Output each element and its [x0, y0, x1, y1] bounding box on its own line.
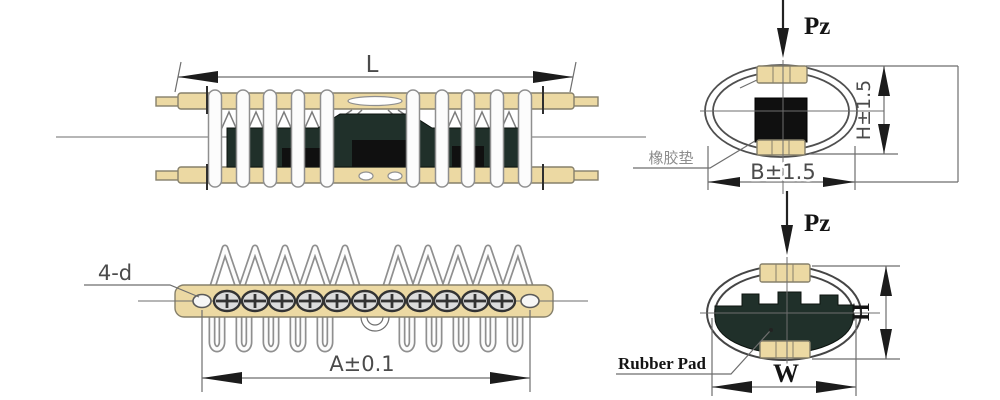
wire-tube	[491, 90, 504, 187]
dim-arrow-down	[878, 124, 890, 154]
side-view: L	[56, 52, 646, 190]
clamp-block	[757, 140, 805, 155]
mounting-hole-left	[193, 295, 211, 308]
clamp-block	[757, 66, 807, 83]
plan-view: 4-d A±0.1	[84, 248, 588, 392]
center-boss-arcs	[361, 317, 389, 331]
pz-label-bottom: Pz	[804, 210, 830, 237]
wire-tube	[321, 90, 334, 187]
dim-arrow-left	[178, 71, 218, 83]
wire-tube	[407, 90, 420, 187]
screw	[407, 291, 433, 311]
rubber-pad-callout-cn: 橡胶垫	[633, 141, 755, 168]
dim-arrow-left	[708, 177, 740, 187]
clamp-block	[760, 264, 810, 282]
dim-B15-label: B±1.5	[750, 160, 815, 184]
dim-arrow-left	[202, 372, 242, 384]
wire-clamp-top	[757, 66, 807, 83]
wire-tube	[209, 90, 222, 187]
wire-tube	[292, 90, 305, 187]
center-mass-shadow	[352, 140, 407, 167]
isolator-technical-drawing: L 4-d	[0, 0, 1000, 400]
rubber-pad-label: Rubber Pad	[618, 354, 707, 373]
wire-tube	[237, 90, 250, 187]
dim-H-label: H	[849, 303, 874, 321]
dim-arrow-right	[533, 71, 573, 83]
screw	[324, 291, 350, 311]
top-bar-slot	[348, 97, 402, 106]
hole-callout-label: 4-d	[98, 261, 132, 285]
screw	[269, 291, 295, 311]
wire-entry-line	[740, 80, 757, 88]
dim-A-label: A±0.1	[329, 352, 394, 376]
clamp-screws	[214, 291, 515, 311]
dim-arrow-right	[490, 372, 530, 384]
screw	[489, 291, 515, 311]
load-arrow-down-icon	[781, 225, 793, 255]
dim-arrow-up	[880, 266, 892, 296]
dim-H15-label: H±1.5	[853, 80, 875, 140]
wire-tube	[519, 90, 532, 187]
screw	[242, 291, 268, 311]
screw	[379, 291, 405, 311]
dim-L: L	[175, 52, 576, 92]
screw	[462, 291, 488, 311]
dim-L-label: L	[366, 52, 379, 78]
load-arrow-down-icon	[777, 28, 789, 58]
screw	[297, 291, 323, 311]
rubber-pad-block	[755, 98, 807, 142]
wire-clamp-bottom	[760, 341, 810, 358]
dim-arrow-right	[816, 381, 856, 393]
screw	[352, 291, 378, 311]
dim-arrow-left	[712, 381, 752, 393]
drawing-canvas: L 4-d	[0, 0, 1000, 400]
wire-tube	[264, 90, 277, 187]
mounting-hole-right	[521, 295, 539, 308]
dim-arrow-down	[880, 329, 892, 359]
bottom-bar-hole	[359, 172, 373, 180]
leader-dot	[769, 328, 773, 332]
wire-tube	[462, 90, 475, 187]
wire-tube	[436, 90, 449, 187]
wire-clamp-bottom	[757, 140, 805, 155]
end-view-top: Pz H±1.5 B±1.5	[633, 0, 958, 194]
end-view-bottom: Pz H W Rub	[616, 191, 900, 396]
screw	[434, 291, 460, 311]
dim-arrow-right	[823, 177, 855, 187]
screw	[214, 291, 240, 311]
rubber-pad-label-cn: 橡胶垫	[648, 149, 693, 167]
bottom-bar-hole	[388, 172, 402, 180]
dim-arrow-up	[878, 66, 890, 96]
clamp-block	[760, 341, 810, 358]
pz-label-top: Pz	[804, 13, 830, 40]
dim-W-label: W	[773, 359, 799, 388]
wire-clamp-top	[760, 264, 810, 282]
